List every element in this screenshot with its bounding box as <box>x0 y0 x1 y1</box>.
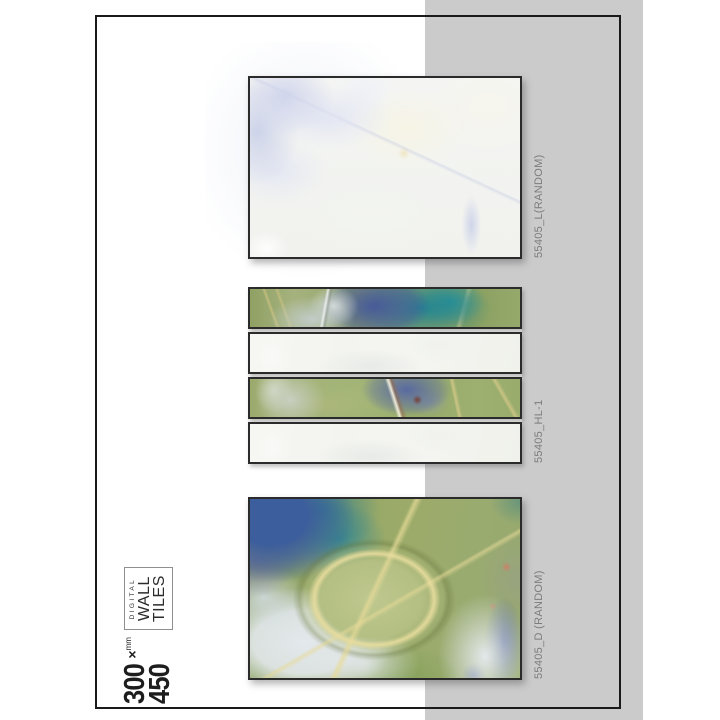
tile-code-label-dark: 55405_D (RANDOM) <box>533 570 545 679</box>
light-marble-texture <box>250 78 520 257</box>
size-height-value: 450 <box>148 664 173 704</box>
badge-line-wall: WALL <box>137 575 152 622</box>
catalog-page-photo: 55405_L(RANDOM) 55405_HL-1 55405_D (RAND… <box>0 0 720 720</box>
tile-sample-strips <box>248 287 522 464</box>
size-line-bottom: 450 <box>148 637 173 704</box>
multiply-sign: × <box>124 650 140 658</box>
strip-green-marble-2 <box>248 377 522 419</box>
tile-code-label-light: 55405_L(RANDOM) <box>533 154 545 258</box>
strip-green-marble-1 <box>248 287 522 329</box>
badge-product-type: DIGITAL <box>129 575 136 622</box>
tile-sample-light <box>248 76 522 259</box>
digital-wall-tiles-badge: DIGITAL WALL TILES <box>124 567 173 630</box>
size-unit-label: mm <box>124 637 133 650</box>
tile-code-label-strips: 55405_HL-1 <box>533 399 545 463</box>
strip-white-marble-2 <box>248 422 522 464</box>
strip-white-marble-1 <box>248 332 522 374</box>
badge-line-tiles: TILES <box>152 575 167 622</box>
branding-block: 300 × mm 450 DIGITAL WALL TILES <box>121 546 175 704</box>
dark-marble-texture <box>250 499 520 678</box>
tile-size-spec: 300 × mm 450 <box>123 637 173 704</box>
tile-sample-dark <box>248 497 522 680</box>
